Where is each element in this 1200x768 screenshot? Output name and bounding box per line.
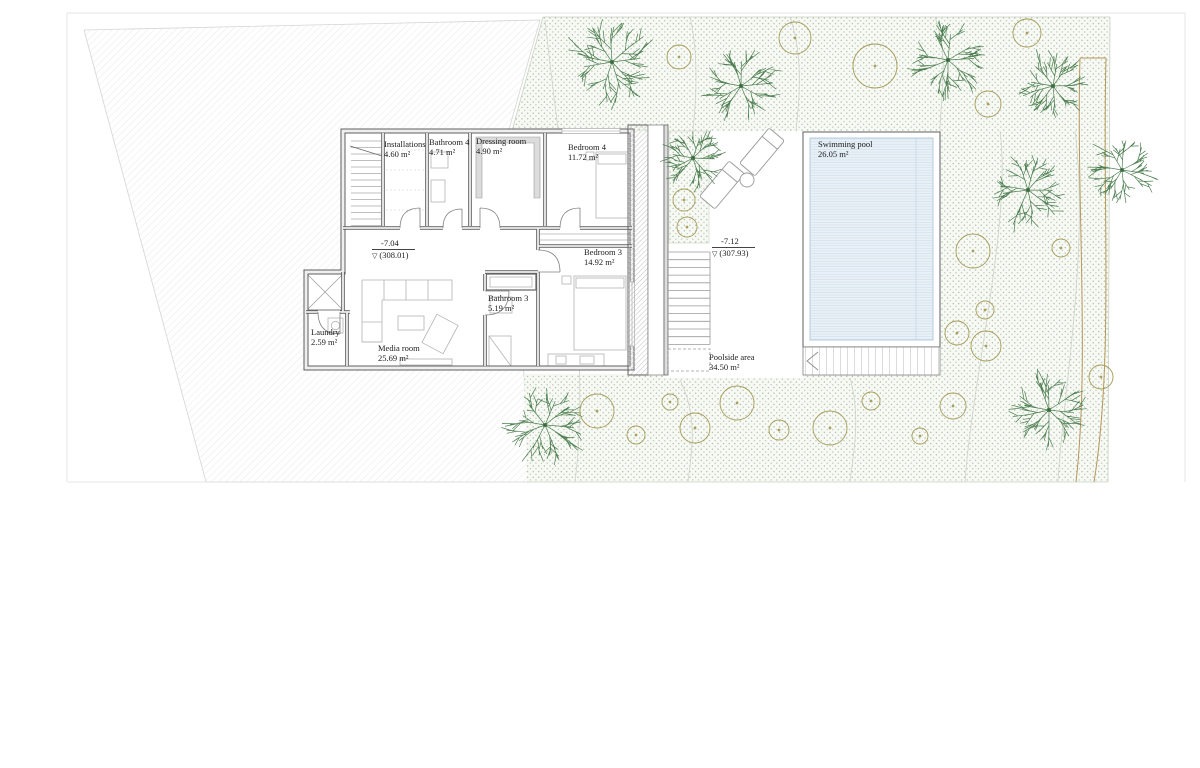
level-marker-house: -7.04 ▽(308.01) [372,238,415,260]
site-plan-canvas [0,0,1200,768]
room-label-laundry: Laundry 2.59 m² [311,327,340,347]
retaining-wall-strip [628,125,668,375]
level-triangle-icon: ▽ [372,252,377,260]
room-label-bedroom-4: Bedroom 4 11.72 m² [568,142,606,162]
shaft [307,274,343,310]
pool-steps [803,347,940,375]
swimming-pool [803,132,940,347]
floor-plan-sheet: Installations 4.60 m² Bathroom 4 4.71 m²… [0,0,1200,768]
room-label-dressing-room: Dressing room 4.90 m² [476,136,526,156]
room-label-bathroom-4: Bathroom 4 4.71 m² [429,137,469,157]
room-label-media-room: Media room 25.69 m² [378,343,420,363]
level-marker-poolside: -7.12 ▽(307.93) [712,236,755,258]
level-triangle-icon: ▽ [712,250,717,258]
bathroom3-niche [486,274,536,290]
room-label-bathroom-3: Bathroom 3 5.19 m² [488,293,528,313]
room-label-installations: Installations 4.60 m² [384,139,426,159]
room-label-bedroom-3: Bedroom 3 14.92 m² [584,247,622,267]
room-label-swimming-pool: Swimming pool 26.05 m² [818,139,873,159]
room-label-poolside-area: Poolside area 34.50 m² [709,352,755,372]
